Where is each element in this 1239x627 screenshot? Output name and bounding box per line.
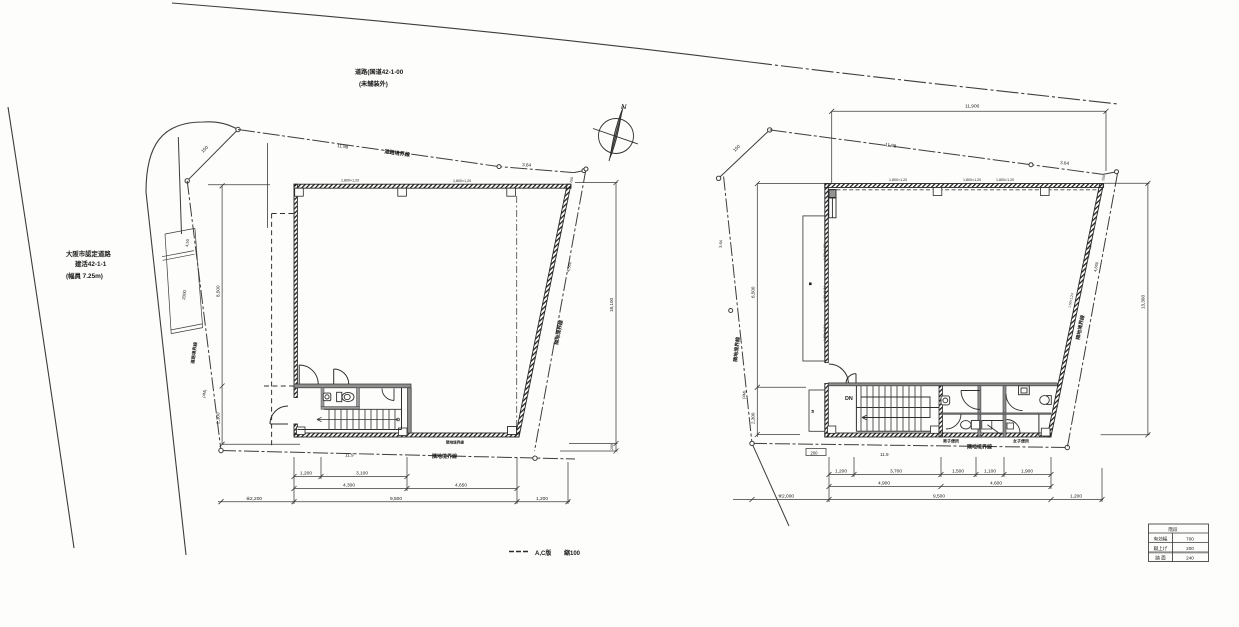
svg-text:1,200: 1,200 <box>1070 494 1082 500</box>
svg-text:※2,000: ※2,000 <box>778 494 794 500</box>
svg-text:大阪市認定道路: 大阪市認定道路 <box>66 249 111 258</box>
svg-text:1,80×1,24: 1,80×1,24 <box>823 286 827 302</box>
svg-text:3.64: 3.64 <box>522 162 532 168</box>
svg-text:蹴上げ: 蹴上げ <box>1154 545 1168 552</box>
svg-text:縮100: 縮100 <box>564 549 581 557</box>
svg-text:N: N <box>621 102 627 111</box>
svg-text:4,500: 4,500 <box>566 261 573 273</box>
svg-text:1,800×1,20: 1,800×1,20 <box>963 178 981 182</box>
svg-text:1,800×1,20: 1,800×1,20 <box>341 179 359 183</box>
svg-text:※2,200: ※2,200 <box>246 496 262 502</box>
svg-text:1,200: 1,200 <box>536 496 548 502</box>
svg-text:11.9: 11.9 <box>345 453 354 458</box>
svg-text:150: 150 <box>200 144 209 153</box>
svg-text:1,800×1,20: 1,800×1,20 <box>996 178 1014 182</box>
svg-text:1,200: 1,200 <box>300 471 312 477</box>
svg-text:2,300: 2,300 <box>216 412 221 424</box>
svg-text:11,900: 11,900 <box>965 104 980 110</box>
svg-text:4,650: 4,650 <box>455 483 467 489</box>
svg-text:(幅員 7.25m): (幅員 7.25m) <box>66 271 103 280</box>
svg-text:(4M): (4M) <box>201 389 207 398</box>
svg-text:男子便所: 男子便所 <box>943 437 959 443</box>
svg-text:6,500: 6,500 <box>751 286 756 298</box>
svg-text:道路(国道42-1-00: 道路(国道42-1-00 <box>355 68 404 76</box>
svg-text:3,100: 3,100 <box>356 471 368 477</box>
svg-text:4,900: 4,900 <box>878 481 890 487</box>
svg-text:道路境界線: 道路境界線 <box>189 341 199 364</box>
svg-text:(4M): (4M) <box>741 390 747 399</box>
svg-text:9,500: 9,500 <box>933 494 945 500</box>
svg-text:150: 150 <box>732 143 741 152</box>
svg-text:1,900: 1,900 <box>1021 469 1033 475</box>
svg-text:1,50×1,24: 1,50×1,24 <box>823 325 827 341</box>
svg-text:4,600: 4,600 <box>1093 261 1100 273</box>
svg-text:女子便所: 女子便所 <box>1013 437 1029 443</box>
svg-text:13,300: 13,300 <box>1140 295 1145 309</box>
svg-text:8,500: 8,500 <box>216 285 221 297</box>
svg-text:18,100: 18,100 <box>609 298 614 312</box>
svg-text:隣地境界線: 隣地境界線 <box>732 337 742 363</box>
svg-text:隣地境界線: 隣地境界線 <box>553 319 565 345</box>
svg-text:階段: 階段 <box>1168 526 1178 533</box>
svg-text:有効幅: 有効幅 <box>1154 536 1168 543</box>
svg-text:道路境界線: 道路境界線 <box>384 147 412 159</box>
svg-text:2,300: 2,300 <box>751 412 756 424</box>
svg-text:1,500: 1,500 <box>952 469 964 475</box>
svg-text:踏 面: 踏 面 <box>1155 555 1166 562</box>
svg-text:3.64: 3.64 <box>1060 160 1070 166</box>
svg-text:11.98: 11.98 <box>885 142 897 149</box>
svg-text:3,700: 3,700 <box>890 469 902 475</box>
svg-text:DN: DN <box>845 396 853 402</box>
svg-text:4,50: 4,50 <box>184 238 190 247</box>
svg-text:1,200: 1,200 <box>835 469 847 475</box>
svg-text:200: 200 <box>610 444 614 450</box>
svg-text:1,80×1,20: 1,80×1,20 <box>823 244 827 260</box>
svg-text:M: M <box>810 409 815 413</box>
svg-text:建活42-1-1: 建活42-1-1 <box>74 259 107 268</box>
svg-text:200: 200 <box>1186 546 1194 551</box>
svg-text:9,500: 9,500 <box>390 496 402 502</box>
svg-text:隣地境界線: 隣地境界線 <box>1075 314 1087 340</box>
svg-text:4,600: 4,600 <box>990 481 1002 487</box>
svg-text:700: 700 <box>1186 537 1194 542</box>
svg-text:11.9: 11.9 <box>880 452 889 457</box>
svg-text:(未舗装外): (未舗装外) <box>359 80 388 88</box>
svg-text:A,C版: A,C版 <box>535 549 551 557</box>
svg-text:1,100: 1,100 <box>984 469 996 475</box>
svg-text:1,800×1,20: 1,800×1,20 <box>453 179 471 183</box>
svg-text:2000: 2000 <box>181 289 187 300</box>
svg-text:240: 240 <box>1186 556 1194 561</box>
svg-text:隣地境界線: 隣地境界線 <box>432 453 457 460</box>
svg-text:隣地境界線: 隣地境界線 <box>446 440 464 445</box>
svg-text:11.98: 11.98 <box>337 143 349 150</box>
svg-text:1,800×1,20: 1,800×1,20 <box>889 178 907 182</box>
svg-text:200: 200 <box>569 177 574 183</box>
svg-text:1,50×1,24: 1,50×1,24 <box>1068 293 1075 308</box>
svg-text:200: 200 <box>1101 175 1106 181</box>
svg-text:隣地境界線: 隣地境界線 <box>967 444 992 451</box>
svg-text:3.64: 3.64 <box>718 239 724 248</box>
svg-text:4,300: 4,300 <box>343 483 355 489</box>
svg-text:200: 200 <box>811 451 819 456</box>
